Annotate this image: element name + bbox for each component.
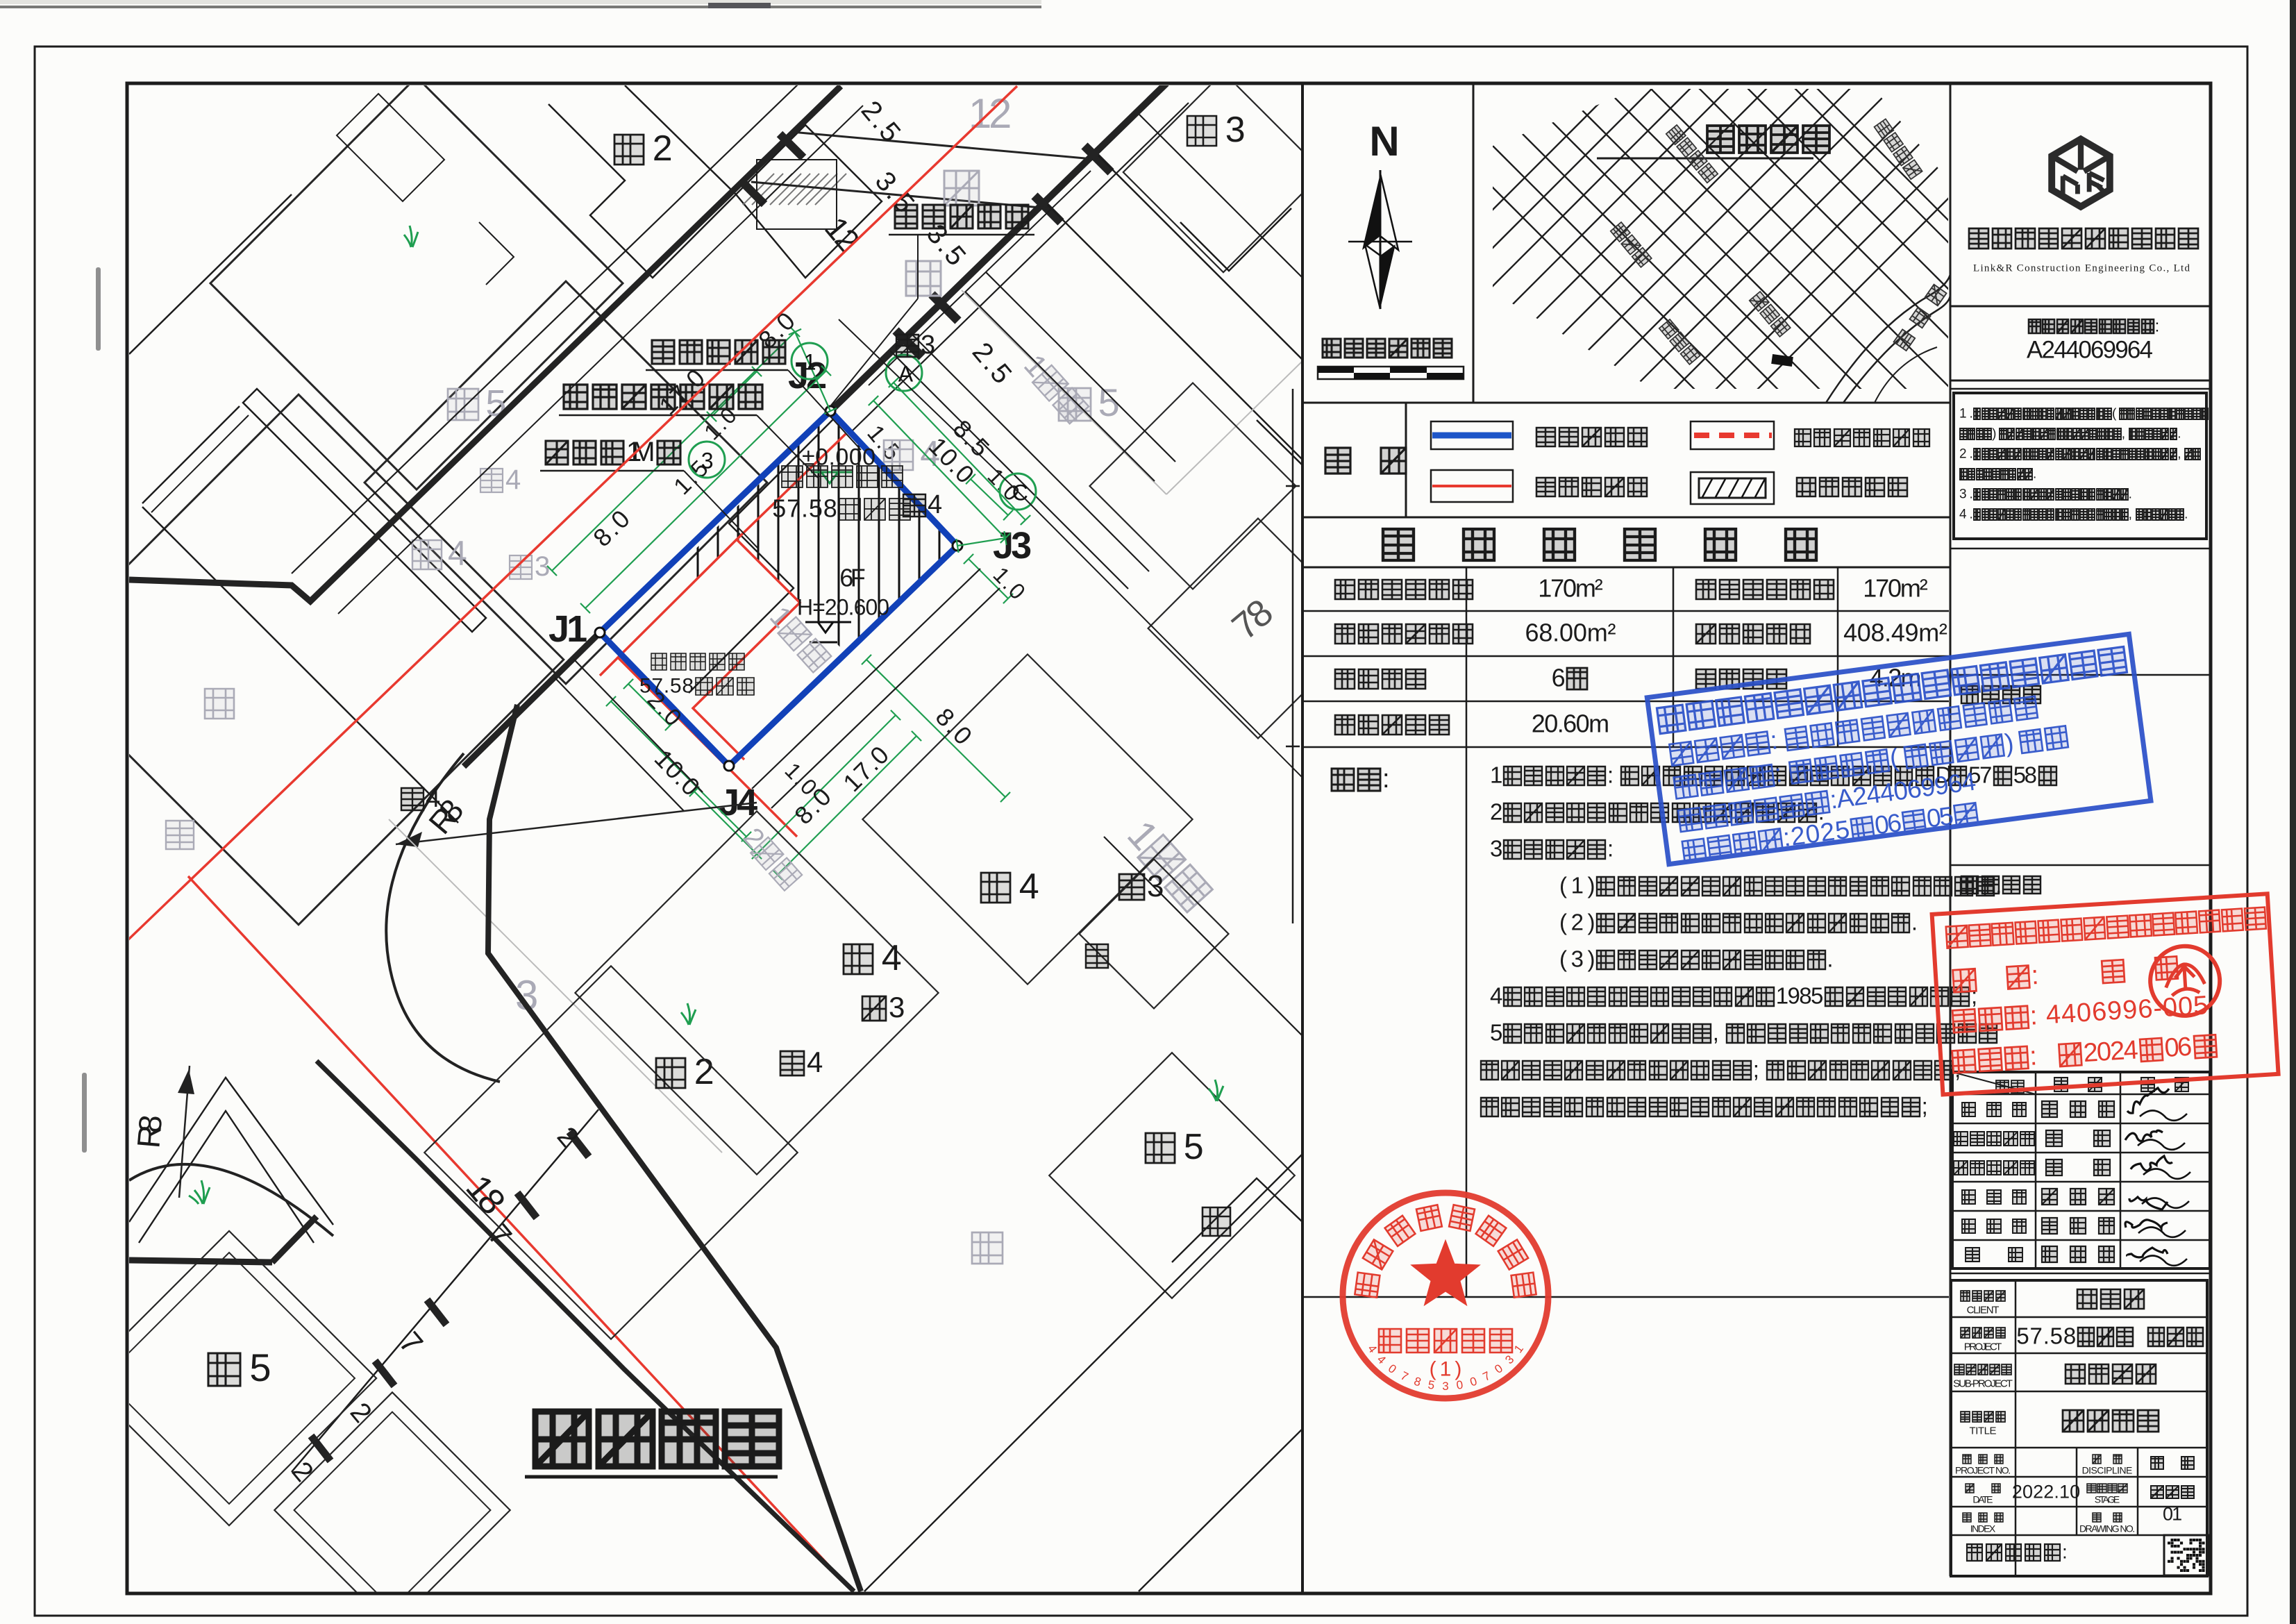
svg-text:2024: 2024: [2082, 1035, 2138, 1068]
svg-text:4: 4: [882, 938, 902, 978]
svg-text:1M: 1M: [626, 437, 655, 467]
svg-text:H=20.600: H=20.600: [797, 594, 889, 619]
svg-text:6F: 6F: [839, 563, 865, 592]
svg-text:57.58: 57.58: [639, 674, 694, 697]
svg-text:5: 5: [1184, 1127, 1204, 1167]
svg-text:4: 4: [448, 534, 467, 573]
svg-text:Link&R Construction Engineerin: Link&R Construction Engineering Co., Ltd: [1973, 263, 2190, 274]
svg-text:68.00m²: 68.00m²: [1525, 618, 1616, 646]
svg-text:.: .: [2177, 427, 2181, 442]
svg-text:1.: 1.: [1959, 407, 1973, 421]
svg-text:;: ;: [1753, 1056, 1759, 1082]
svg-text:58: 58: [2013, 762, 2037, 787]
svg-text:PROJECT: PROJECT: [1964, 1341, 2002, 1353]
svg-text:): ): [1992, 427, 1996, 442]
svg-text:3: 3: [1490, 835, 1502, 861]
svg-text:INDEX: INDEX: [1970, 1523, 1996, 1534]
svg-text:01: 01: [2163, 1504, 2182, 1525]
svg-text:.: .: [2129, 487, 2132, 502]
svg-text:DATE: DATE: [1972, 1494, 1993, 1505]
svg-text:A: A: [898, 361, 914, 386]
svg-text:4: 4: [1490, 982, 1502, 1008]
svg-text:1: 1: [804, 349, 816, 374]
svg-text:4: 4: [1019, 867, 1039, 907]
svg-text:R8: R8: [130, 1114, 169, 1150]
svg-text:20.60m: 20.60m: [1532, 709, 1609, 737]
svg-text::: :: [1382, 764, 1390, 794]
svg-text:3: 3: [921, 330, 935, 360]
svg-text:2022.10: 2022.10: [2012, 1482, 2080, 1502]
svg-text:3: 3: [701, 448, 714, 473]
svg-text:05: 05: [1925, 801, 1956, 833]
svg-text:170m²: 170m²: [1863, 574, 1928, 602]
svg-text:(3): (3): [1559, 946, 1595, 971]
svg-text:CLIENT: CLIENT: [1967, 1305, 2000, 1316]
svg-text:4: 4: [505, 464, 521, 495]
svg-text:3: 3: [1147, 869, 1164, 903]
svg-text:(1): (1): [1559, 872, 1595, 898]
svg-text:06: 06: [2163, 1032, 2193, 1063]
svg-text:408.49m²: 408.49m²: [1843, 618, 1947, 646]
svg-text:57.58: 57.58: [772, 494, 837, 522]
svg-text:5: 5: [1490, 1019, 1502, 1045]
svg-text:N: N: [1369, 118, 1399, 165]
svg-text:,: ,: [2177, 447, 2181, 462]
svg-text::: :: [2062, 1541, 2068, 1562]
svg-text:5: 5: [249, 1346, 271, 1389]
svg-text:A244069964: A244069964: [2027, 336, 2153, 363]
svg-text:3: 3: [889, 991, 905, 1023]
svg-text:2: 2: [1490, 798, 1502, 824]
svg-text:1: 1: [1490, 762, 1502, 787]
svg-text:PROJECT NO.: PROJECT NO.: [1955, 1465, 2011, 1476]
svg-text::: :: [2155, 317, 2160, 336]
svg-text:STAGE: STAGE: [2095, 1494, 2120, 1505]
svg-text:.: .: [1995, 872, 2002, 898]
svg-text:2: 2: [694, 1052, 714, 1092]
svg-text:3: 3: [1225, 110, 1246, 150]
svg-text:DISCIPLINE: DISCIPLINE: [2082, 1465, 2133, 1476]
svg-text:6: 6: [1552, 663, 1566, 692]
svg-text:4: 4: [807, 1046, 823, 1078]
svg-text:2.: 2.: [1959, 447, 1973, 462]
svg-text:.: .: [2033, 467, 2036, 482]
svg-text:,: ,: [2122, 427, 2125, 442]
svg-text:;: ;: [1922, 1093, 1928, 1119]
svg-text:170m²: 170m²: [1538, 574, 1603, 602]
svg-text:,: ,: [1713, 1019, 1719, 1045]
svg-text:DRAWING NO.: DRAWING NO.: [2079, 1523, 2135, 1534]
svg-text:4.: 4.: [1959, 508, 1973, 522]
svg-text::: :: [1607, 762, 1614, 787]
svg-text:57.58: 57.58: [2016, 1323, 2076, 1348]
svg-text:06: 06: [1873, 808, 1904, 840]
svg-text:,: ,: [2129, 508, 2132, 522]
svg-text:(: (: [2112, 407, 2117, 421]
svg-text:J1: J1: [548, 608, 587, 650]
svg-text:.: .: [1911, 909, 1918, 935]
svg-text:.: .: [2184, 508, 2188, 522]
svg-text:3.: 3.: [1959, 487, 1973, 502]
svg-text:C: C: [1012, 480, 1028, 505]
svg-text:2: 2: [653, 128, 673, 169]
svg-text:.: .: [1827, 946, 1833, 971]
svg-text:1985: 1985: [1776, 982, 1824, 1008]
svg-text::: :: [1607, 835, 1614, 861]
svg-text:(1): (1): [1430, 1357, 1462, 1380]
svg-text:SUB-PROJECT: SUB-PROJECT: [1953, 1378, 2013, 1390]
svg-text:3: 3: [1442, 1380, 1448, 1393]
svg-text:4: 4: [928, 490, 942, 519]
svg-text:(2): (2): [1559, 909, 1595, 935]
svg-text:4: 4: [426, 784, 440, 813]
svg-text:TITLE: TITLE: [1970, 1425, 1997, 1437]
